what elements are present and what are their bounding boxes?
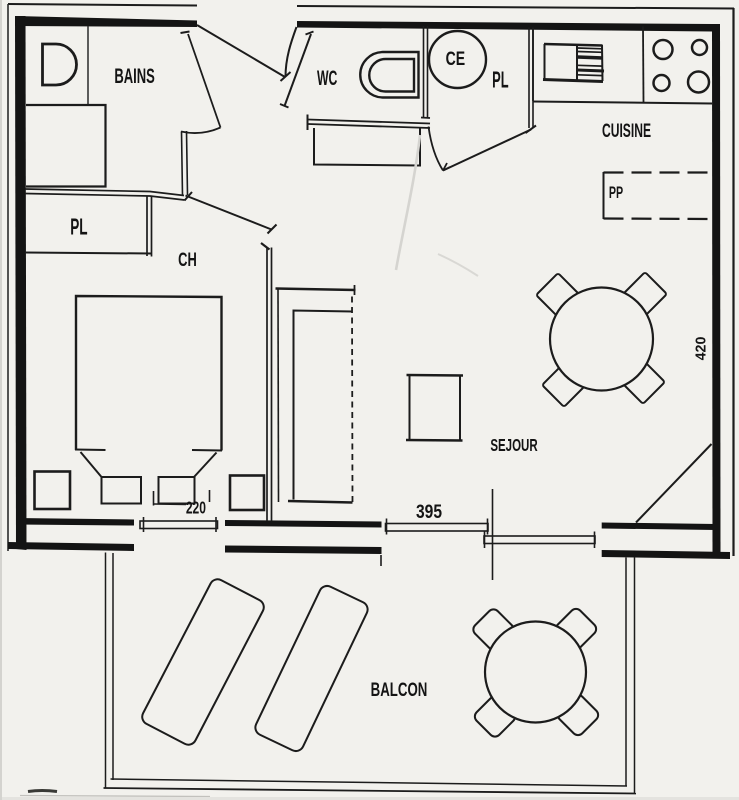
svg-text:395: 395 xyxy=(416,500,442,522)
svg-text:PL: PL xyxy=(492,67,508,93)
svg-text:BAINS: BAINS xyxy=(114,64,155,88)
svg-text:CH: CH xyxy=(178,250,197,271)
svg-text:PL: PL xyxy=(70,215,87,241)
svg-text:BALCON: BALCON xyxy=(371,678,428,700)
svg-text:CUISINE: CUISINE xyxy=(602,120,651,142)
svg-text:220: 220 xyxy=(186,498,206,518)
svg-text:WC: WC xyxy=(317,65,338,90)
svg-text:420: 420 xyxy=(693,337,709,361)
svg-text:SEJOUR: SEJOUR xyxy=(490,436,537,456)
svg-text:PP: PP xyxy=(609,184,623,203)
svg-text:CE: CE xyxy=(446,48,466,70)
